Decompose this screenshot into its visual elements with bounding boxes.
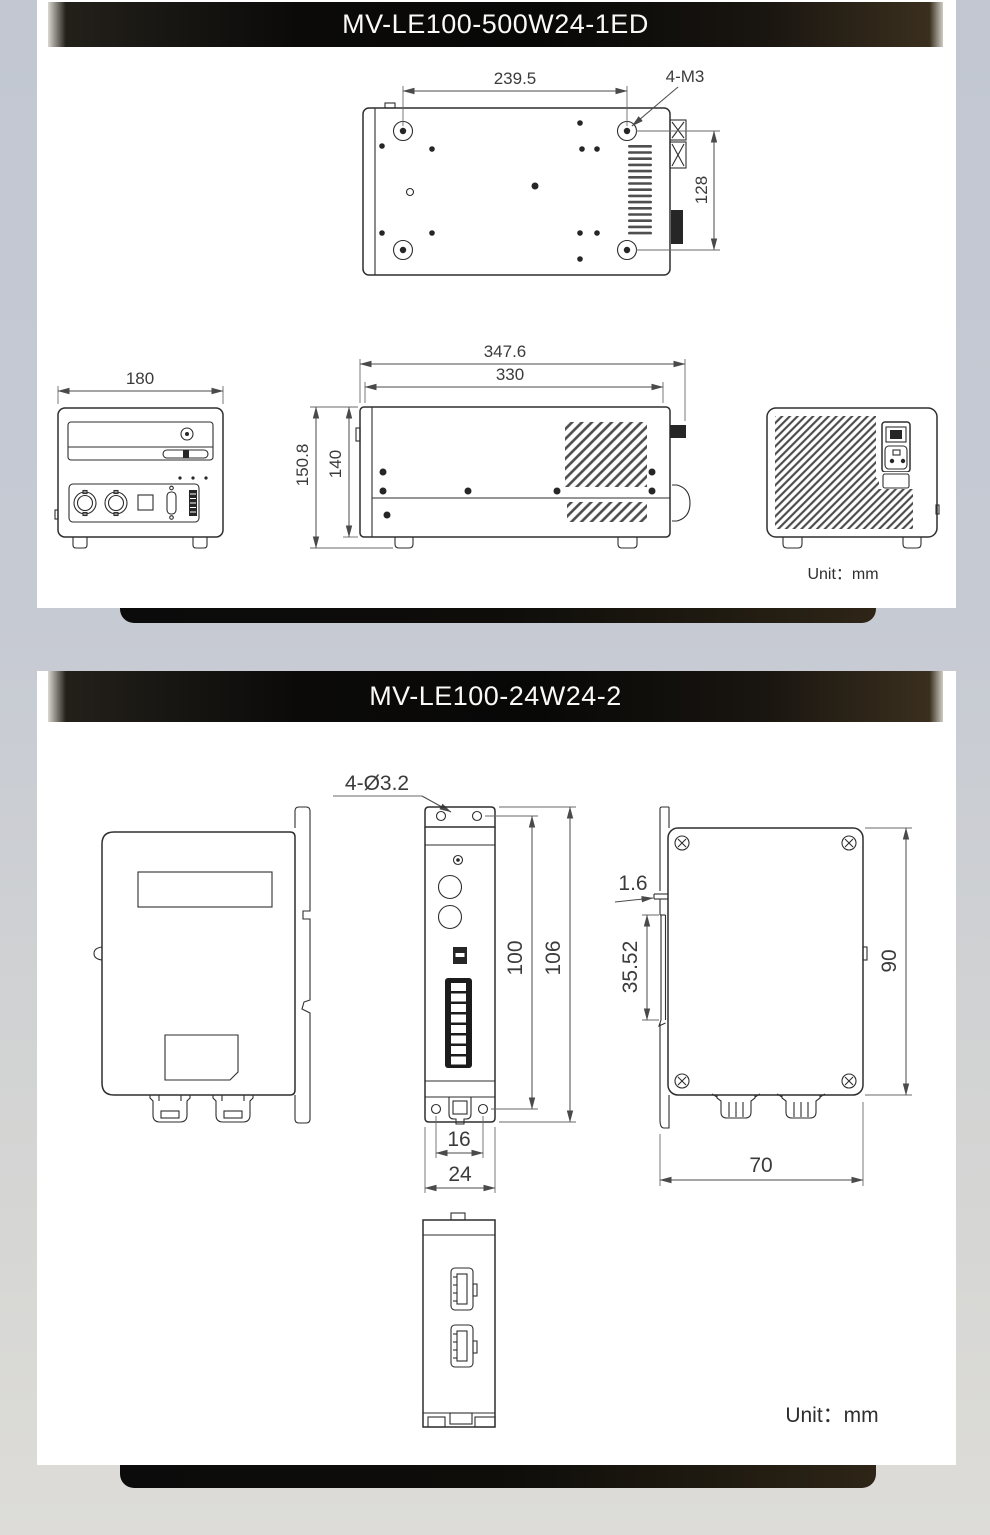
dim-label-hole-pitch: 16 — [447, 1128, 470, 1151]
din-front-view-drawing: 4-Ø3.2 — [325, 760, 585, 1205]
bottom-connector — [150, 1095, 190, 1122]
callout-4-o3-2: 4-Ø3.2 — [333, 772, 451, 812]
bottom-view-connector — [451, 1268, 477, 1310]
front-connector-hole-2 — [439, 906, 462, 929]
rear-plug — [670, 425, 686, 438]
front-view-drawing: 180 — [50, 358, 250, 558]
dim-100: 100 — [485, 816, 538, 1109]
dim-label-overall-height: 150.8 — [293, 444, 312, 487]
hole-callout-label: 4-Ø3.2 — [345, 772, 409, 795]
product-dimension-sheet: { "panel1": { "title": "MV-LE100-500W24-… — [0, 0, 990, 1535]
front-module-body — [425, 807, 495, 1124]
vent-slots — [628, 145, 652, 234]
vent-grille-lower — [567, 502, 647, 522]
panel2-title-bar: MV-LE100-24W24-2 — [48, 671, 943, 722]
din-side-view-right-drawing: 1.6 35.52 90 70 — [615, 795, 965, 1200]
mounting-holes — [394, 122, 637, 260]
dim-35-52: 35.52 — [619, 915, 659, 1020]
bottom-connector-2 — [712, 1094, 760, 1118]
panel-mv-le100-500w24-1ed: MV-LE100-500W24-1ED — [37, 0, 956, 608]
panel1-unit-note: Unit：mm — [763, 560, 923, 584]
panel2-unit-note: Unit：mm — [747, 1399, 917, 1429]
dim-70: 70 — [660, 1102, 863, 1186]
dim-330: 330 — [365, 365, 663, 403]
din-rail-bracket — [295, 807, 310, 1123]
screw-dots — [379, 120, 600, 262]
dim-label-body-height: 140 — [326, 450, 345, 478]
rear-connectors — [670, 120, 686, 244]
rear-handle — [672, 485, 690, 521]
top-view-drawing: 239.5 4-M3 128 — [348, 60, 748, 305]
dim-180: 180 — [58, 369, 223, 404]
callout-4-m3: 4-M3 — [632, 67, 704, 126]
panel2-title: MV-LE100-24W24-2 — [369, 681, 622, 712]
side-body — [356, 407, 690, 548]
vent-grille-upper — [565, 422, 647, 487]
dim-label-rail-slot: 35.52 — [619, 941, 642, 994]
front-connector-hole-1 — [439, 876, 462, 899]
dim-label-hole-span: 100 — [504, 940, 527, 975]
corner-screws — [675, 836, 856, 1088]
panel1-title-bar: MV-LE100-500W24-1ED — [48, 2, 943, 47]
front-body — [55, 408, 223, 548]
side-view-drawing: 347.6 330 150.8 — [300, 333, 695, 558]
rear-body — [767, 408, 939, 548]
side-latch-tab — [94, 947, 102, 960]
dim-label-body-width: 330 — [496, 365, 524, 384]
dim-1-6: 1.6 — [615, 872, 653, 902]
dim-label-side-width: 70 — [749, 1154, 772, 1177]
module-side-body-2 — [654, 807, 867, 1128]
panel1-title: MV-LE100-500W24-1ED — [342, 9, 649, 40]
dim-label-overall-width: 347.6 — [484, 342, 527, 361]
bottom-view-body — [423, 1213, 495, 1427]
dim-label-front-width: 180 — [126, 369, 154, 388]
dim-label-rail-lip: 1.6 — [618, 872, 647, 895]
dim-label-width: 24 — [448, 1163, 472, 1186]
dim-140: 140 — [326, 407, 358, 537]
panel-mv-le100-24w24-2: MV-LE100-24W24-2 4-Ø3.2 — [37, 671, 956, 1465]
dim-90: 90 — [865, 828, 912, 1095]
dim-label-top-width: 239.5 — [494, 69, 537, 88]
dim-label-overall-height: 106 — [542, 940, 565, 975]
dim-label-height: 90 — [878, 949, 901, 972]
side-label-recess — [138, 872, 272, 907]
dim-label-top-height: 128 — [692, 176, 711, 204]
side-lower-recess — [165, 1035, 238, 1080]
din-rail-profile — [654, 807, 669, 1128]
module-side-body — [94, 807, 310, 1123]
din-bottom-view-drawing — [405, 1205, 515, 1435]
dim-239-5: 239.5 — [403, 69, 627, 126]
terminal-block — [445, 978, 472, 1068]
thread-callout-label: 4-M3 — [666, 67, 705, 86]
din-side-view-left-drawing — [85, 795, 315, 1140]
